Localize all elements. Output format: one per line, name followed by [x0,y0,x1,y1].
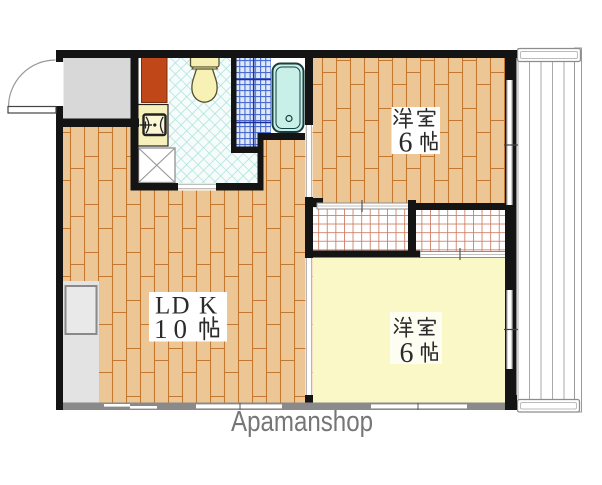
svg-text:6: 6 [399,128,413,159]
svg-text:Apamanshop: Apamanshop [231,406,373,438]
svg-text:6: 6 [400,338,414,369]
svg-text:0: 0 [174,314,188,344]
svg-text:1: 1 [154,314,168,344]
svg-text:K: K [199,293,217,320]
